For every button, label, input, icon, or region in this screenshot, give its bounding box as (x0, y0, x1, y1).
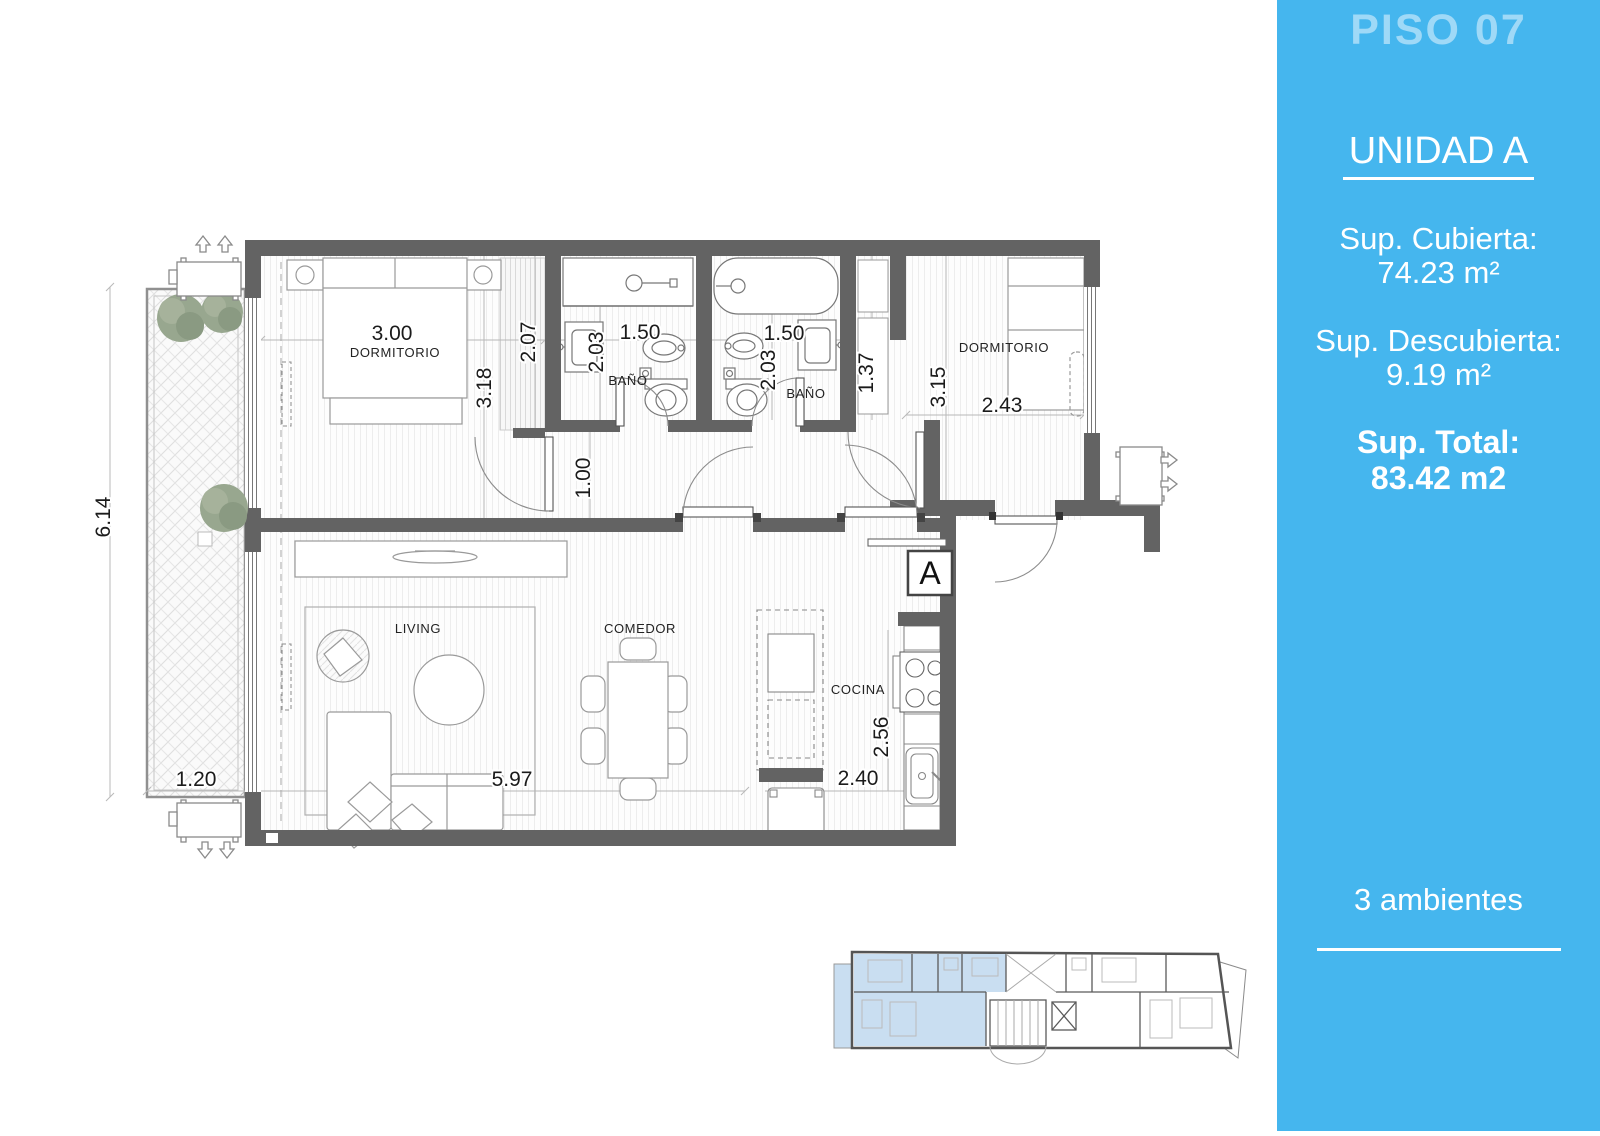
label-cocina: COCINA (831, 682, 885, 697)
unit-title-text: UNIDAD A (1343, 130, 1534, 180)
total-area-value: 83.42 m2 (1277, 460, 1600, 496)
dim-dorm2-width: 2.43 (982, 394, 1023, 417)
dim-bano2-width: 1.50 (764, 322, 805, 345)
balcony-terrace (147, 289, 245, 797)
label-comedor: COMEDOR (604, 621, 676, 636)
label-living: LIVING (395, 621, 441, 636)
covered-area: Sup. Cubierta: 74.23 m² (1277, 222, 1600, 290)
dim-balcony-length: 6.14 (92, 496, 115, 537)
dim-hall-width: 1.00 (572, 458, 595, 499)
total-area: Sup. Total: 83.42 m2 (1277, 424, 1600, 496)
label-bano-2: BAÑO (786, 386, 825, 401)
bed-dorm2 (1008, 258, 1084, 416)
dim-living-width: 5.97 (492, 768, 533, 791)
divider-line (1317, 948, 1561, 951)
dim-dorm1-depth: 3.18 (473, 368, 496, 409)
unit-marker-letter: A (919, 555, 941, 591)
covered-area-value: 74.23 m² (1277, 256, 1600, 290)
label-dormitorio-2: DORMITORIO (959, 340, 1049, 355)
covered-area-label: Sup. Cubierta: (1277, 222, 1600, 256)
floor-plan: A 3.00 DORMITORIO 3.18 2.07 1.50 2.03 BA… (0, 0, 1277, 1131)
unit-title: UNIDAD A (1277, 130, 1600, 180)
dim-closet2-width: 1.37 (855, 353, 878, 394)
dim-bano1-width: 1.50 (620, 321, 661, 344)
unit-marker: A (908, 551, 952, 595)
dim-kitchen-passage: 2.40 (838, 767, 879, 790)
label-dormitorio-1: DORMITORIO (350, 345, 440, 360)
total-area-label: Sup. Total: (1277, 424, 1600, 460)
dim-kitchen-depth: 2.56 (870, 717, 893, 758)
uncovered-area-value: 9.19 m² (1277, 358, 1600, 392)
dim-bano2-depth: 2.03 (757, 350, 780, 391)
dim-bano1-depth: 2.03 (585, 332, 608, 373)
uncovered-area: Sup. Descubierta: 9.19 m² (1277, 324, 1600, 392)
dim-dorm2-depth: 3.15 (927, 367, 950, 408)
dim-dorm1-width: 3.00 (372, 322, 413, 345)
corner-detail (266, 833, 278, 843)
uncovered-area-label: Sup. Descubierta: (1277, 324, 1600, 358)
key-plan (834, 952, 1246, 1064)
rooms-count: 3 ambientes (1277, 882, 1600, 918)
floor-title: PISO 07 (1277, 6, 1600, 55)
label-bano-1: BAÑO (608, 373, 647, 388)
info-sidebar: PISO 07 UNIDAD A Sup. Cubierta: 74.23 m²… (1277, 0, 1600, 1131)
dim-dorm1-closet: 2.07 (517, 322, 540, 363)
dim-balcony-width: 1.20 (176, 768, 217, 791)
